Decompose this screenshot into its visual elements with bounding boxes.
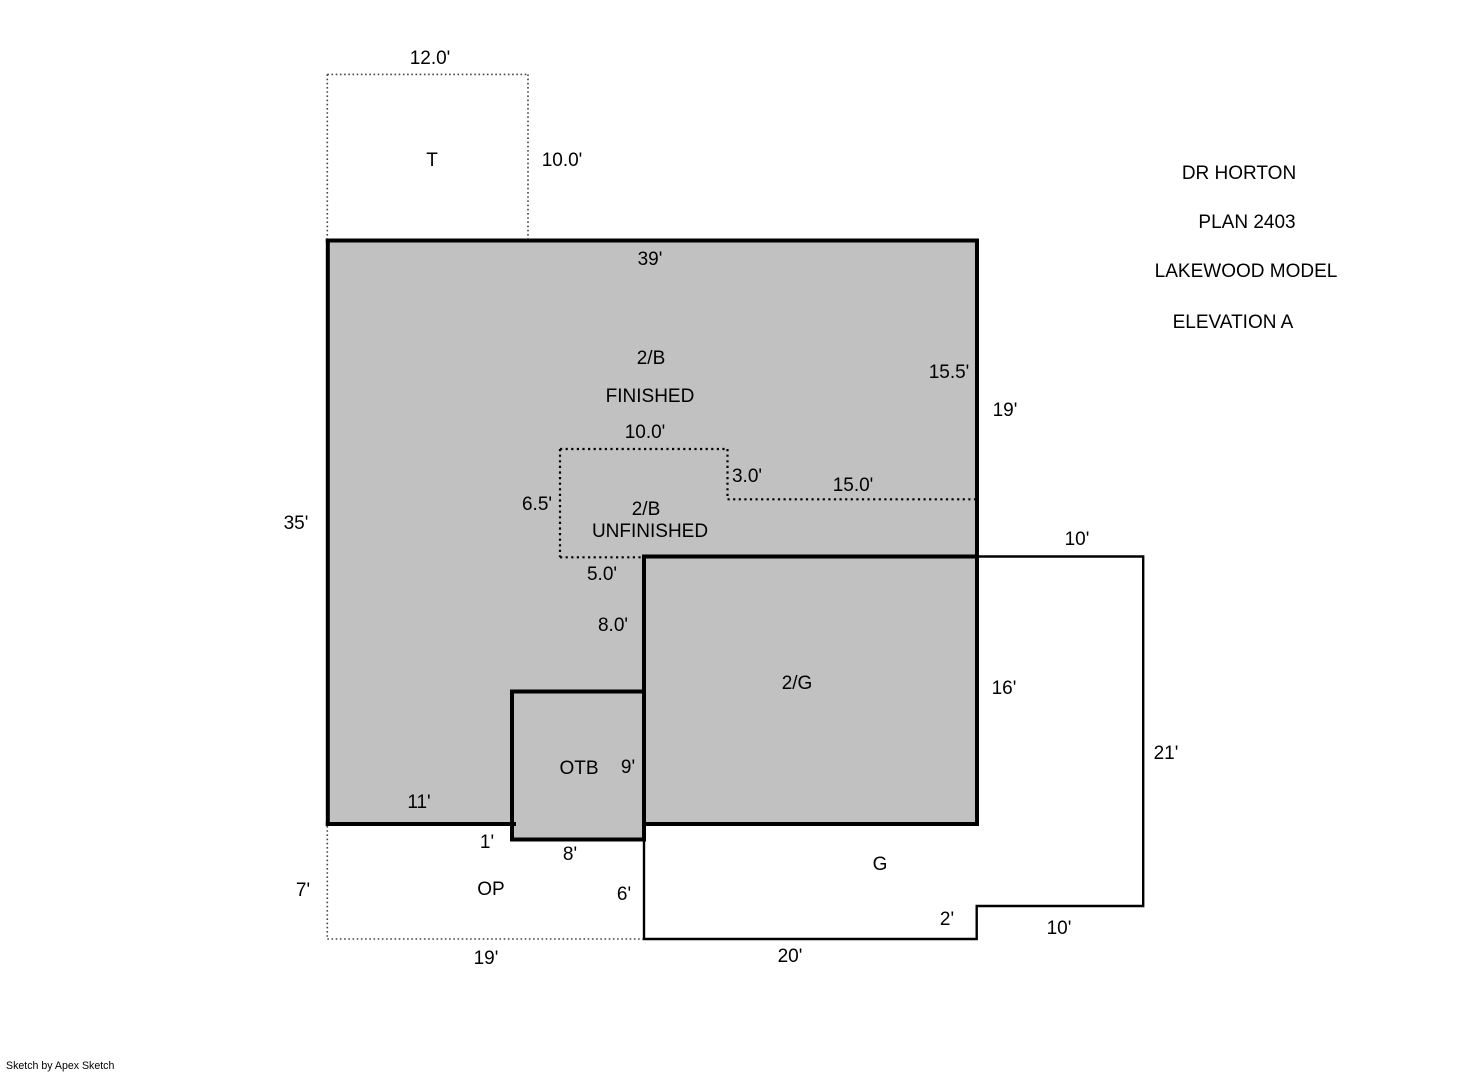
- svg-text:39': 39': [638, 249, 663, 270]
- svg-text:19': 19': [474, 948, 499, 969]
- svg-text:ELEVATION A: ELEVATION A: [1173, 312, 1294, 333]
- svg-text:15.5': 15.5': [929, 362, 970, 383]
- svg-text:11': 11': [407, 792, 430, 813]
- svg-text:1': 1': [480, 832, 494, 853]
- svg-text:12.0': 12.0': [410, 48, 451, 69]
- svg-text:9': 9': [621, 757, 635, 778]
- svg-text:10.0': 10.0': [542, 150, 583, 171]
- svg-text:19': 19': [993, 400, 1018, 421]
- svg-text:21': 21': [1154, 743, 1179, 764]
- svg-text:10': 10': [1065, 529, 1090, 550]
- svg-text:15.0': 15.0': [833, 475, 874, 496]
- svg-text:PLAN 2403: PLAN 2403: [1198, 212, 1295, 233]
- svg-text:Sketch by Apex Sketch: Sketch by Apex Sketch: [6, 1060, 114, 1072]
- svg-text:OP: OP: [477, 879, 504, 900]
- svg-text:2/B: 2/B: [637, 348, 666, 369]
- svg-text:8': 8': [563, 844, 577, 865]
- svg-text:3.0': 3.0': [732, 466, 762, 487]
- svg-text:35': 35': [284, 513, 309, 534]
- svg-text:5.0': 5.0': [587, 564, 617, 585]
- svg-text:DR HORTON: DR HORTON: [1182, 163, 1296, 184]
- svg-text:20': 20': [778, 946, 803, 967]
- svg-text:16': 16': [992, 678, 1017, 699]
- svg-text:2': 2': [940, 909, 954, 930]
- svg-text:7': 7': [296, 880, 310, 901]
- svg-text:6.5': 6.5': [522, 494, 552, 515]
- svg-text:2/B: 2/B: [632, 499, 661, 520]
- svg-text:2/G: 2/G: [782, 673, 813, 694]
- svg-text:FINISHED: FINISHED: [606, 386, 695, 407]
- svg-text:T: T: [426, 150, 438, 171]
- svg-text:LAKEWOOD MODEL: LAKEWOOD MODEL: [1155, 261, 1338, 282]
- svg-text:8.0': 8.0': [598, 615, 628, 636]
- svg-text:UNFINISHED: UNFINISHED: [592, 521, 708, 542]
- svg-text:G: G: [873, 854, 888, 875]
- svg-text:6': 6': [617, 884, 631, 905]
- svg-text:10': 10': [1047, 918, 1072, 939]
- svg-text:10.0': 10.0': [625, 422, 666, 443]
- svg-text:OTB: OTB: [559, 758, 598, 779]
